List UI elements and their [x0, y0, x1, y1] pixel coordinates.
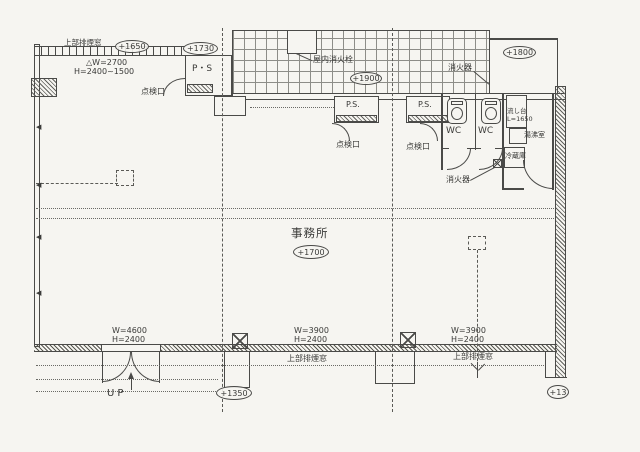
vent-marker-icon: ◀ [36, 182, 41, 189]
level-marker-1350: +1350 [216, 386, 252, 400]
inspection-right-label: 点検口 [406, 142, 430, 151]
pipe-shaft-left-label: P.S. [346, 100, 360, 109]
ceiling-joint-line-2 [36, 218, 554, 219]
ceiling-hatch-leader [36, 183, 118, 184]
up-arrow-line [131, 378, 132, 390]
landing-line-1 [36, 379, 218, 380]
window1-h-label: H=2400 [294, 335, 327, 344]
level-marker-1650: +1650 [115, 40, 149, 53]
grid-line-vertical-1 [222, 28, 223, 412]
vent-marker-icon: ◀ [36, 290, 41, 297]
smoke-vent-top-label: 上部排煙窓 [64, 39, 102, 48]
door-swing-left [102, 352, 131, 382]
inspection-hatch-door-arc [163, 78, 185, 96]
kitchenette-wall-bottom [503, 188, 524, 190]
wc-stall-divider [475, 94, 476, 150]
toilet-icon-left [447, 98, 467, 124]
wall-right [555, 86, 566, 378]
up-arrow-head-icon [128, 372, 134, 379]
toilet-icon-right [481, 98, 501, 124]
landing-line-2 [36, 391, 218, 392]
inspection-left-label: 点検口 [336, 140, 360, 149]
window1-w-label: W=3900 [294, 326, 329, 335]
pipe-shaft-top-label: P・S [192, 64, 212, 74]
ceiling-access-box-1 [116, 170, 134, 186]
kitchenette-label: 湯沸室 [524, 131, 545, 139]
window-spec-h-label: H=2400~1500 [74, 67, 134, 76]
ceiling-joint-line-1 [36, 208, 554, 209]
kitchenette-door-arc [523, 160, 553, 189]
door-jamb-right [160, 344, 161, 352]
inspection-top-label: 点検口 [141, 87, 165, 96]
level-marker-1700: +1700 [293, 245, 329, 259]
window2-w-label: W=3900 [451, 326, 486, 335]
hydrant-recess [287, 30, 317, 54]
corner-step-v [545, 352, 546, 378]
column-left [232, 333, 248, 349]
pipe-shaft-left-sill [336, 115, 377, 122]
refrigerator-label: 冷蔵庫 [505, 152, 526, 160]
corridor-line [250, 107, 334, 108]
wc-right-label: WC [478, 126, 493, 136]
stair-protrusion-right [375, 351, 415, 384]
wc-left-label: WC [446, 126, 461, 136]
level-marker-corner: +13 [547, 385, 569, 399]
stair-protrusion-left [224, 351, 250, 388]
vent-marker-icon: ◀ [36, 124, 41, 131]
sink-length-label: L=1650 [507, 116, 533, 123]
corner-step-h [545, 377, 567, 378]
up-label: UP [107, 388, 126, 400]
extinguisher-wc-label: 消火器 [446, 175, 470, 184]
floor-plan-scan: { "drawing": { "type": "architectural-fl… [0, 0, 640, 452]
toilet-bowl-icon [485, 107, 497, 120]
door-jamb-left [101, 344, 102, 352]
wall-pier-left [31, 78, 57, 97]
pipe-shaft-right-door-arc [420, 123, 438, 141]
window1-name-label: 上部排煙窓 [287, 354, 327, 363]
grid-line-vertical-2 [392, 28, 393, 412]
toilet-tank-icon [451, 101, 463, 105]
pipe-shaft-right-label: P.S. [418, 100, 432, 109]
ceiling-access-box-2 [468, 236, 486, 250]
floor-plan: ◀ ◀ ◀ ◀ 上部排煙窓 +1650 +1730 △W=2700 H=2400… [0, 0, 640, 452]
entry-door-w-label: W=4600 [112, 326, 147, 335]
level-marker-1900: +1900 [350, 72, 382, 85]
column-right [400, 332, 416, 348]
window-band-top [34, 46, 186, 56]
window2-name-label: 上部排煙窓 [453, 352, 493, 361]
wc-wall-left [441, 94, 443, 170]
wc-door-arc-left [447, 148, 471, 170]
door-swing-right [131, 352, 160, 382]
indoor-hydrant-label: 屋内消火栓 [313, 55, 353, 64]
toilet-bowl-icon [451, 107, 463, 120]
level-marker-1730: +1730 [183, 42, 218, 55]
office-room-label: 事務所 [291, 227, 329, 240]
exterior-line-1 [36, 365, 544, 366]
pipe-shaft-top-sill [187, 84, 213, 93]
pipe-shaft-left-door-arc [332, 123, 350, 141]
vent-marker-icon: ◀ [36, 234, 41, 241]
kitchenette-wall-left [502, 94, 504, 190]
window-spec-w-label: △W=2700 [86, 58, 127, 67]
toilet-tank-icon [485, 101, 497, 105]
window2-h-label: H=2400 [451, 335, 484, 344]
entry-door-h-label: H=2400 [112, 335, 145, 344]
extinguisher-top-label: 消火器 [448, 63, 472, 72]
duct-protrusion [214, 96, 246, 116]
level-marker-1800: +1800 [503, 46, 536, 59]
